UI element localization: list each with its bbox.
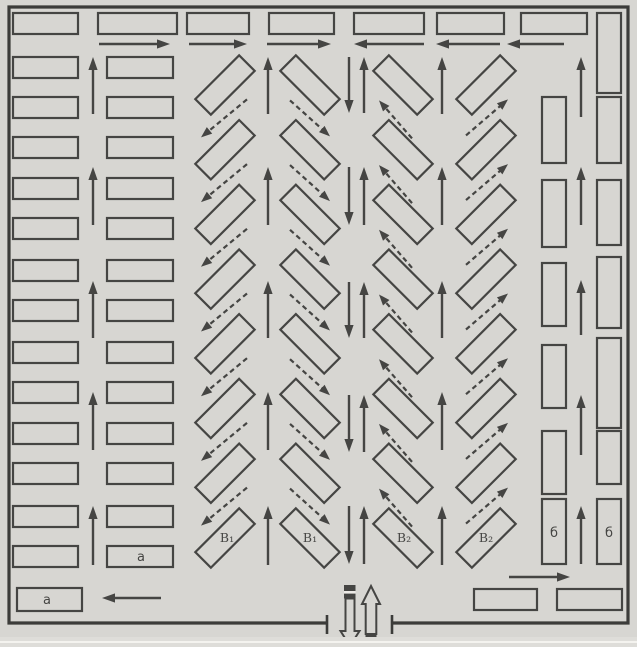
maneuver-arrow-dashed — [290, 424, 330, 460]
arrow-head — [319, 255, 330, 265]
arrow-head — [157, 39, 170, 48]
stall-diagonal — [195, 249, 254, 308]
stall — [13, 423, 78, 444]
arrow-head — [437, 57, 446, 70]
stall — [107, 423, 173, 444]
arrow-shaft — [466, 428, 502, 459]
maneuver-arrow-dashed — [290, 295, 330, 331]
stall-vertical — [597, 257, 621, 328]
maneuver-arrow-dashed — [466, 488, 508, 524]
arrow-head — [359, 506, 368, 519]
arrow-head — [319, 191, 330, 202]
arrow-head — [359, 167, 368, 180]
maneuver-arrow-dashed — [201, 229, 247, 267]
arrow-shaft — [290, 295, 324, 326]
arrow-head — [318, 39, 331, 48]
maneuver-arrow-dashed — [466, 164, 508, 200]
stall-diagonal — [280, 314, 339, 373]
stall-diagonal — [280, 55, 339, 114]
stall-diagonal — [280, 444, 339, 503]
flow-arrow-up — [576, 395, 585, 455]
stall-diagonal — [195, 185, 254, 244]
arrow-head — [88, 392, 97, 405]
arrow-head — [354, 39, 367, 48]
stall — [13, 137, 78, 158]
arrow-shaft — [384, 171, 412, 203]
stall — [13, 342, 78, 363]
flow-arrow-down — [344, 282, 353, 338]
arrow-shaft — [466, 234, 502, 265]
maneuver-arrow-dashed — [201, 164, 247, 202]
arrow-head — [497, 164, 508, 174]
flow-arrow-left — [507, 39, 564, 48]
flow-arrow-up — [437, 57, 446, 114]
arrow-shaft — [384, 301, 412, 333]
echelon-stall-block: В₁В₁В₂В₂ — [195, 55, 515, 567]
arrow-shaft — [290, 424, 324, 455]
arrow-head — [576, 395, 585, 408]
stall-diagonal — [456, 120, 515, 179]
stall-diagonal — [280, 120, 339, 179]
stall — [107, 463, 173, 484]
stall-diagonal — [456, 55, 515, 114]
stall-vertical — [542, 263, 566, 326]
maneuver-arrow-dashed — [201, 294, 247, 332]
echelon-column: В₁ — [195, 55, 254, 567]
stall — [98, 13, 177, 34]
flow-arrow-right — [189, 39, 247, 48]
flow-arrow-right — [509, 572, 570, 581]
stall-vertical — [597, 97, 621, 163]
stall-diagonal — [195, 379, 254, 438]
arrow-shaft — [290, 165, 324, 196]
stall — [13, 178, 78, 199]
arrow-head — [344, 212, 353, 225]
flow-arrow-up — [437, 281, 446, 338]
maneuver-arrow-dashed — [201, 358, 247, 396]
flow-arrow-up — [88, 57, 97, 114]
arrow-head — [319, 320, 330, 331]
stall — [13, 97, 78, 118]
stall — [474, 589, 537, 610]
top-stall-row — [13, 13, 587, 49]
scan-edge — [0, 637, 637, 647]
maneuver-arrow-dashed — [466, 294, 508, 330]
flow-arrow-up — [437, 506, 446, 565]
arrow-shaft — [207, 423, 247, 456]
stall-label: б — [550, 526, 558, 541]
arrow-head — [234, 39, 247, 48]
arrow-head — [88, 506, 97, 519]
stall — [13, 218, 78, 239]
flow-arrow-down — [344, 57, 353, 113]
arrow-head — [359, 282, 368, 295]
arrow-head — [263, 281, 272, 294]
arrow-head — [88, 57, 97, 70]
flow-arrow-up — [576, 57, 585, 117]
arrow-head — [437, 167, 446, 180]
maneuver-arrow-dashed — [466, 423, 508, 459]
flow-arrow-up — [263, 392, 272, 450]
arrow-head — [344, 439, 353, 452]
maneuver-arrow-dashed — [201, 488, 247, 526]
stall-diagonal — [195, 444, 254, 503]
parking-flow-scheme: ааВ₁В₁В₂В₂бб — [0, 0, 637, 647]
stall — [13, 300, 78, 321]
stall — [521, 13, 587, 34]
stall-label: б — [605, 526, 613, 541]
echelon-column: В₁ — [280, 55, 339, 567]
stall — [107, 506, 173, 527]
flow-arrow-up — [359, 167, 368, 225]
arrow-head — [437, 281, 446, 294]
arrow-shaft — [466, 169, 502, 200]
flow-arrow-up — [437, 167, 446, 225]
flow-arrow-up — [359, 395, 368, 452]
stall — [557, 589, 622, 610]
arrow-head — [436, 39, 449, 48]
arrow-shaft — [384, 106, 412, 138]
arrow-shaft — [207, 294, 247, 327]
flow-arrow-up — [576, 506, 585, 564]
stall-diagonal — [456, 185, 515, 244]
arrow-head — [437, 506, 446, 519]
flow-arrow-left — [436, 39, 500, 48]
stall-diagonal — [456, 249, 515, 308]
arrow-head — [497, 358, 508, 368]
arrow-shaft — [290, 489, 324, 520]
arrow-shaft — [207, 229, 247, 262]
stall — [107, 300, 173, 321]
arrow-head — [497, 294, 508, 304]
stall — [107, 178, 173, 199]
gate-post-band — [344, 591, 356, 594]
arrow-shaft — [207, 488, 247, 521]
arrow-shaft — [384, 430, 412, 462]
stall-label: В₂ — [397, 530, 411, 545]
flow-arrow-up — [263, 281, 272, 338]
arrow-head — [263, 57, 272, 70]
arrow-head — [263, 506, 272, 519]
arrow-head — [497, 229, 508, 239]
arrow-shaft — [466, 363, 502, 394]
arrow-shaft — [290, 100, 324, 131]
arrow-shaft — [384, 236, 412, 268]
arrow-head — [88, 167, 97, 180]
flow-arrow-right — [267, 39, 331, 48]
flow-arrow-up — [437, 392, 446, 450]
arrow-head — [497, 423, 508, 433]
arrow-head — [263, 167, 272, 180]
arrow-head — [319, 385, 330, 396]
flow-arrow-down — [344, 506, 353, 564]
flow-arrow-down — [344, 395, 353, 452]
stall — [13, 260, 78, 281]
stall — [13, 463, 78, 484]
stall — [13, 13, 78, 34]
arrow-head — [576, 506, 585, 519]
stall-diagonal — [456, 444, 515, 503]
arrow-shaft — [466, 493, 502, 524]
arrow-head — [497, 99, 508, 109]
maneuver-arrow-dashed — [201, 423, 247, 461]
stall-label: а — [43, 593, 51, 608]
arrow-head — [359, 57, 368, 70]
stall — [107, 342, 173, 363]
stall — [107, 137, 173, 158]
maneuver-arrow-dashed — [290, 489, 330, 525]
entry-arrow-up-outline — [362, 586, 380, 634]
stall-diagonal — [280, 185, 339, 244]
stall-label: В₁ — [303, 530, 317, 545]
maneuver-arrow-dashed — [466, 358, 508, 394]
stall — [107, 97, 173, 118]
arrow-head — [344, 100, 353, 113]
arrow-head — [497, 488, 508, 498]
flow-arrow-up — [263, 506, 272, 565]
stall-diagonal — [195, 120, 254, 179]
stall-diagonal — [280, 379, 339, 438]
stall-vertical — [597, 431, 621, 484]
flow-arrow-up — [359, 282, 368, 338]
flow-arrow-right — [99, 39, 170, 48]
arrow-shaft — [466, 299, 502, 330]
arrow-head — [319, 449, 330, 460]
flow-arrow-left — [102, 593, 161, 602]
maneuver-arrow-dashed — [290, 100, 330, 136]
flow-arrow-up — [88, 167, 97, 225]
stall — [107, 382, 173, 403]
stall-vertical — [597, 13, 621, 93]
flow-arrow-up — [359, 57, 368, 113]
stall-label: В₁ — [220, 530, 234, 545]
arrow-head — [507, 39, 520, 48]
arrow-shaft — [207, 358, 247, 391]
stall-vertical — [597, 180, 621, 245]
arrow-shaft — [207, 99, 247, 132]
stall — [13, 546, 78, 567]
arrow-head — [344, 325, 353, 338]
flow-arrow-up — [88, 281, 97, 338]
stall — [187, 13, 249, 34]
stall — [13, 57, 78, 78]
stall-vertical — [542, 431, 566, 494]
stall — [269, 13, 334, 34]
maneuver-arrow-dashed — [290, 230, 330, 266]
scanned-diagram-page: ааВ₁В₁В₂В₂бб — [0, 0, 637, 647]
flow-arrow-up — [263, 57, 272, 114]
flow-arrow-up — [359, 506, 368, 564]
stall-label: а — [137, 550, 145, 565]
flow-arrow-down — [344, 167, 353, 225]
maneuver-arrow-dashed — [201, 99, 247, 137]
stall — [107, 57, 173, 78]
stall-diagonal — [456, 314, 515, 373]
stall-vertical — [597, 338, 621, 428]
arrow-head — [319, 126, 330, 136]
flow-arrow-up — [88, 392, 97, 450]
maneuver-arrow-dashed — [466, 99, 508, 135]
echelon-column: В₂ — [456, 55, 515, 567]
stall — [437, 13, 504, 34]
flow-arrow-up — [88, 506, 97, 565]
arrow-shaft — [290, 359, 324, 390]
stall-diagonal — [195, 55, 254, 114]
right-stall-block: бб — [474, 13, 622, 610]
arrow-head — [576, 57, 585, 70]
stall-diagonal — [456, 379, 515, 438]
arrow-head — [319, 514, 330, 525]
arrow-head — [557, 572, 570, 581]
stall — [13, 506, 78, 527]
stall-label: В₂ — [479, 530, 493, 545]
stall — [107, 260, 173, 281]
arrow-head — [576, 280, 585, 293]
flow-arrow-up — [576, 167, 585, 225]
stall — [354, 13, 424, 34]
stall-vertical — [542, 180, 566, 247]
arrow-shaft — [384, 365, 412, 397]
flow-arrow-up — [576, 280, 585, 335]
arrow-head — [263, 392, 272, 405]
flow-arrow-left — [354, 39, 424, 48]
maneuver-arrow-dashed — [290, 359, 330, 395]
arrow-shaft — [290, 230, 324, 261]
arrow-head — [344, 551, 353, 564]
maneuver-arrow-dashed — [290, 165, 330, 201]
stall-vertical — [542, 97, 566, 163]
echelon-column: В₂ — [373, 55, 432, 567]
arrow-shaft — [384, 495, 412, 527]
arrow-head — [576, 167, 585, 180]
flow-arrow-up — [263, 167, 272, 225]
arrow-shaft — [466, 105, 502, 136]
stall — [107, 218, 173, 239]
stall — [13, 382, 78, 403]
stall-diagonal — [195, 314, 254, 373]
arrow-head — [359, 395, 368, 408]
stall-diagonal — [280, 249, 339, 308]
arrow-head — [437, 392, 446, 405]
left-stall-block: аа — [13, 57, 173, 611]
maneuver-arrow-dashed — [466, 229, 508, 265]
arrow-head — [102, 593, 115, 602]
stall-vertical — [542, 345, 566, 408]
arrow-shaft — [207, 164, 247, 197]
arrow-head — [88, 281, 97, 294]
